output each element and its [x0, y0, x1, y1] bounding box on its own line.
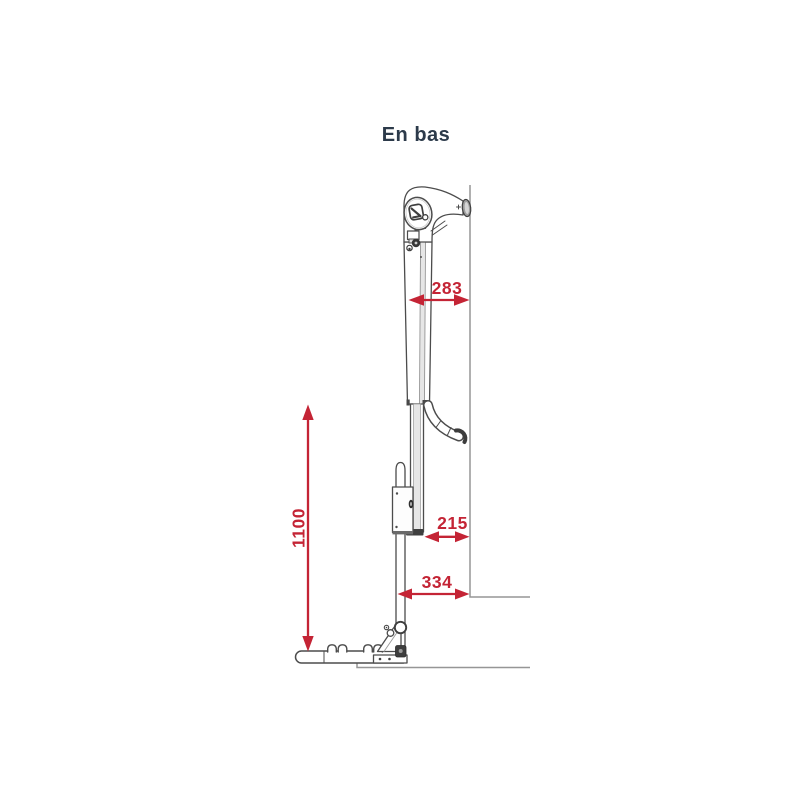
dimension-bottom: 334: [398, 572, 470, 600]
support-arm: [428, 405, 465, 442]
upper-column: [404, 242, 432, 406]
gusset-hook: [387, 630, 394, 637]
column-rivet: [420, 256, 422, 258]
diagram-canvas: En bas: [0, 0, 800, 800]
dimension-middle-value: 215: [437, 513, 468, 533]
wall-reference-line: [470, 185, 530, 597]
arrowhead-up-icon: [302, 405, 313, 421]
ground-reference-line: [357, 664, 530, 668]
dimension-height-value: 1100: [289, 508, 309, 548]
dimension-top-value: 283: [432, 278, 463, 298]
arrowhead-right-icon: [455, 589, 470, 600]
pivot-bolt: [395, 622, 406, 633]
arrowhead-left-icon: [425, 531, 440, 542]
dimension-bottom-value: 334: [422, 572, 453, 592]
mounting-plate: [393, 487, 414, 534]
dimension-height: 1100: [289, 405, 314, 652]
dimension-annotations: 283 215 334 1100: [289, 278, 470, 652]
arrowhead-down-icon: [302, 636, 313, 652]
dimension-middle: 215: [425, 513, 470, 542]
technical-drawing: 283 215 334 1100: [0, 0, 800, 800]
clamp-bolt: [396, 646, 407, 658]
